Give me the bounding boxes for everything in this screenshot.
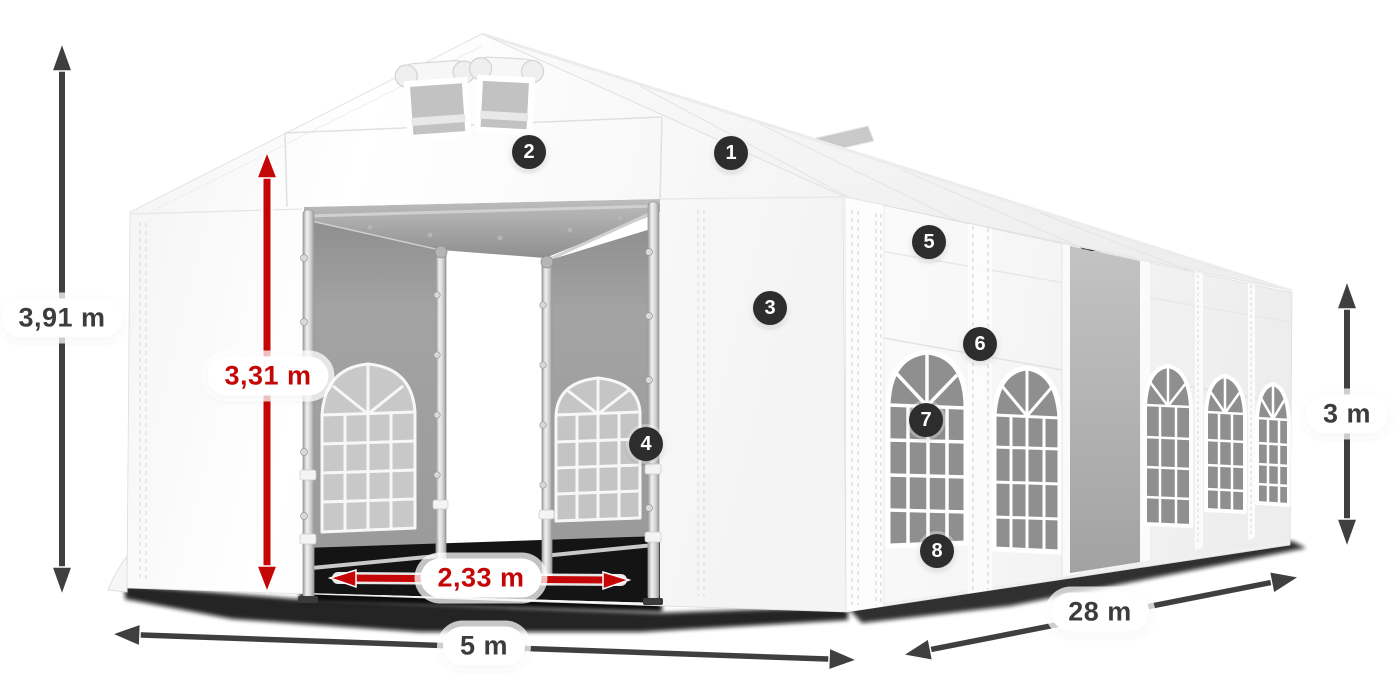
side-window [1206,376,1245,512]
feature-marker-2: 2 [512,135,546,169]
roof-vent-left [394,59,479,138]
entrance-opening [304,199,660,603]
side-window [888,352,966,546]
dimension-label-entrance-height: 3,31 m [207,357,328,396]
feature-marker-4: 4 [629,427,663,461]
door-panel-left [312,222,437,572]
corner-band [845,197,884,612]
tent-dimension-diagram: 3,91 m 3,31 m 2,33 m 5 m 28 m 3 m 1 2 3 … [0,0,1400,700]
feature-marker-6: 6 [963,327,997,361]
dimension-label-wall-height: 3 m [1306,395,1388,434]
skirt-flap [108,556,127,592]
side-window [994,368,1060,552]
side-window [1145,366,1191,526]
feature-marker-5: 5 [912,225,946,259]
feature-marker-3: 3 [753,291,787,325]
side-wall [845,197,1292,612]
feature-marker-8: 8 [920,534,954,568]
feature-marker-7: 7 [909,403,943,437]
dimension-label-front-width: 5 m [443,627,525,666]
side-window [1257,384,1289,505]
dimension-label-total-height: 3,91 m [1,299,122,338]
dimension-label-entrance-width: 2,33 m [420,559,541,598]
seam-band [968,203,992,604]
roof-vent-right [466,56,544,133]
tent-illustration [0,0,1400,700]
door-panel-right [543,228,654,560]
dimension-label-side-length: 28 m [1051,593,1149,632]
feature-marker-1: 1 [714,136,748,170]
